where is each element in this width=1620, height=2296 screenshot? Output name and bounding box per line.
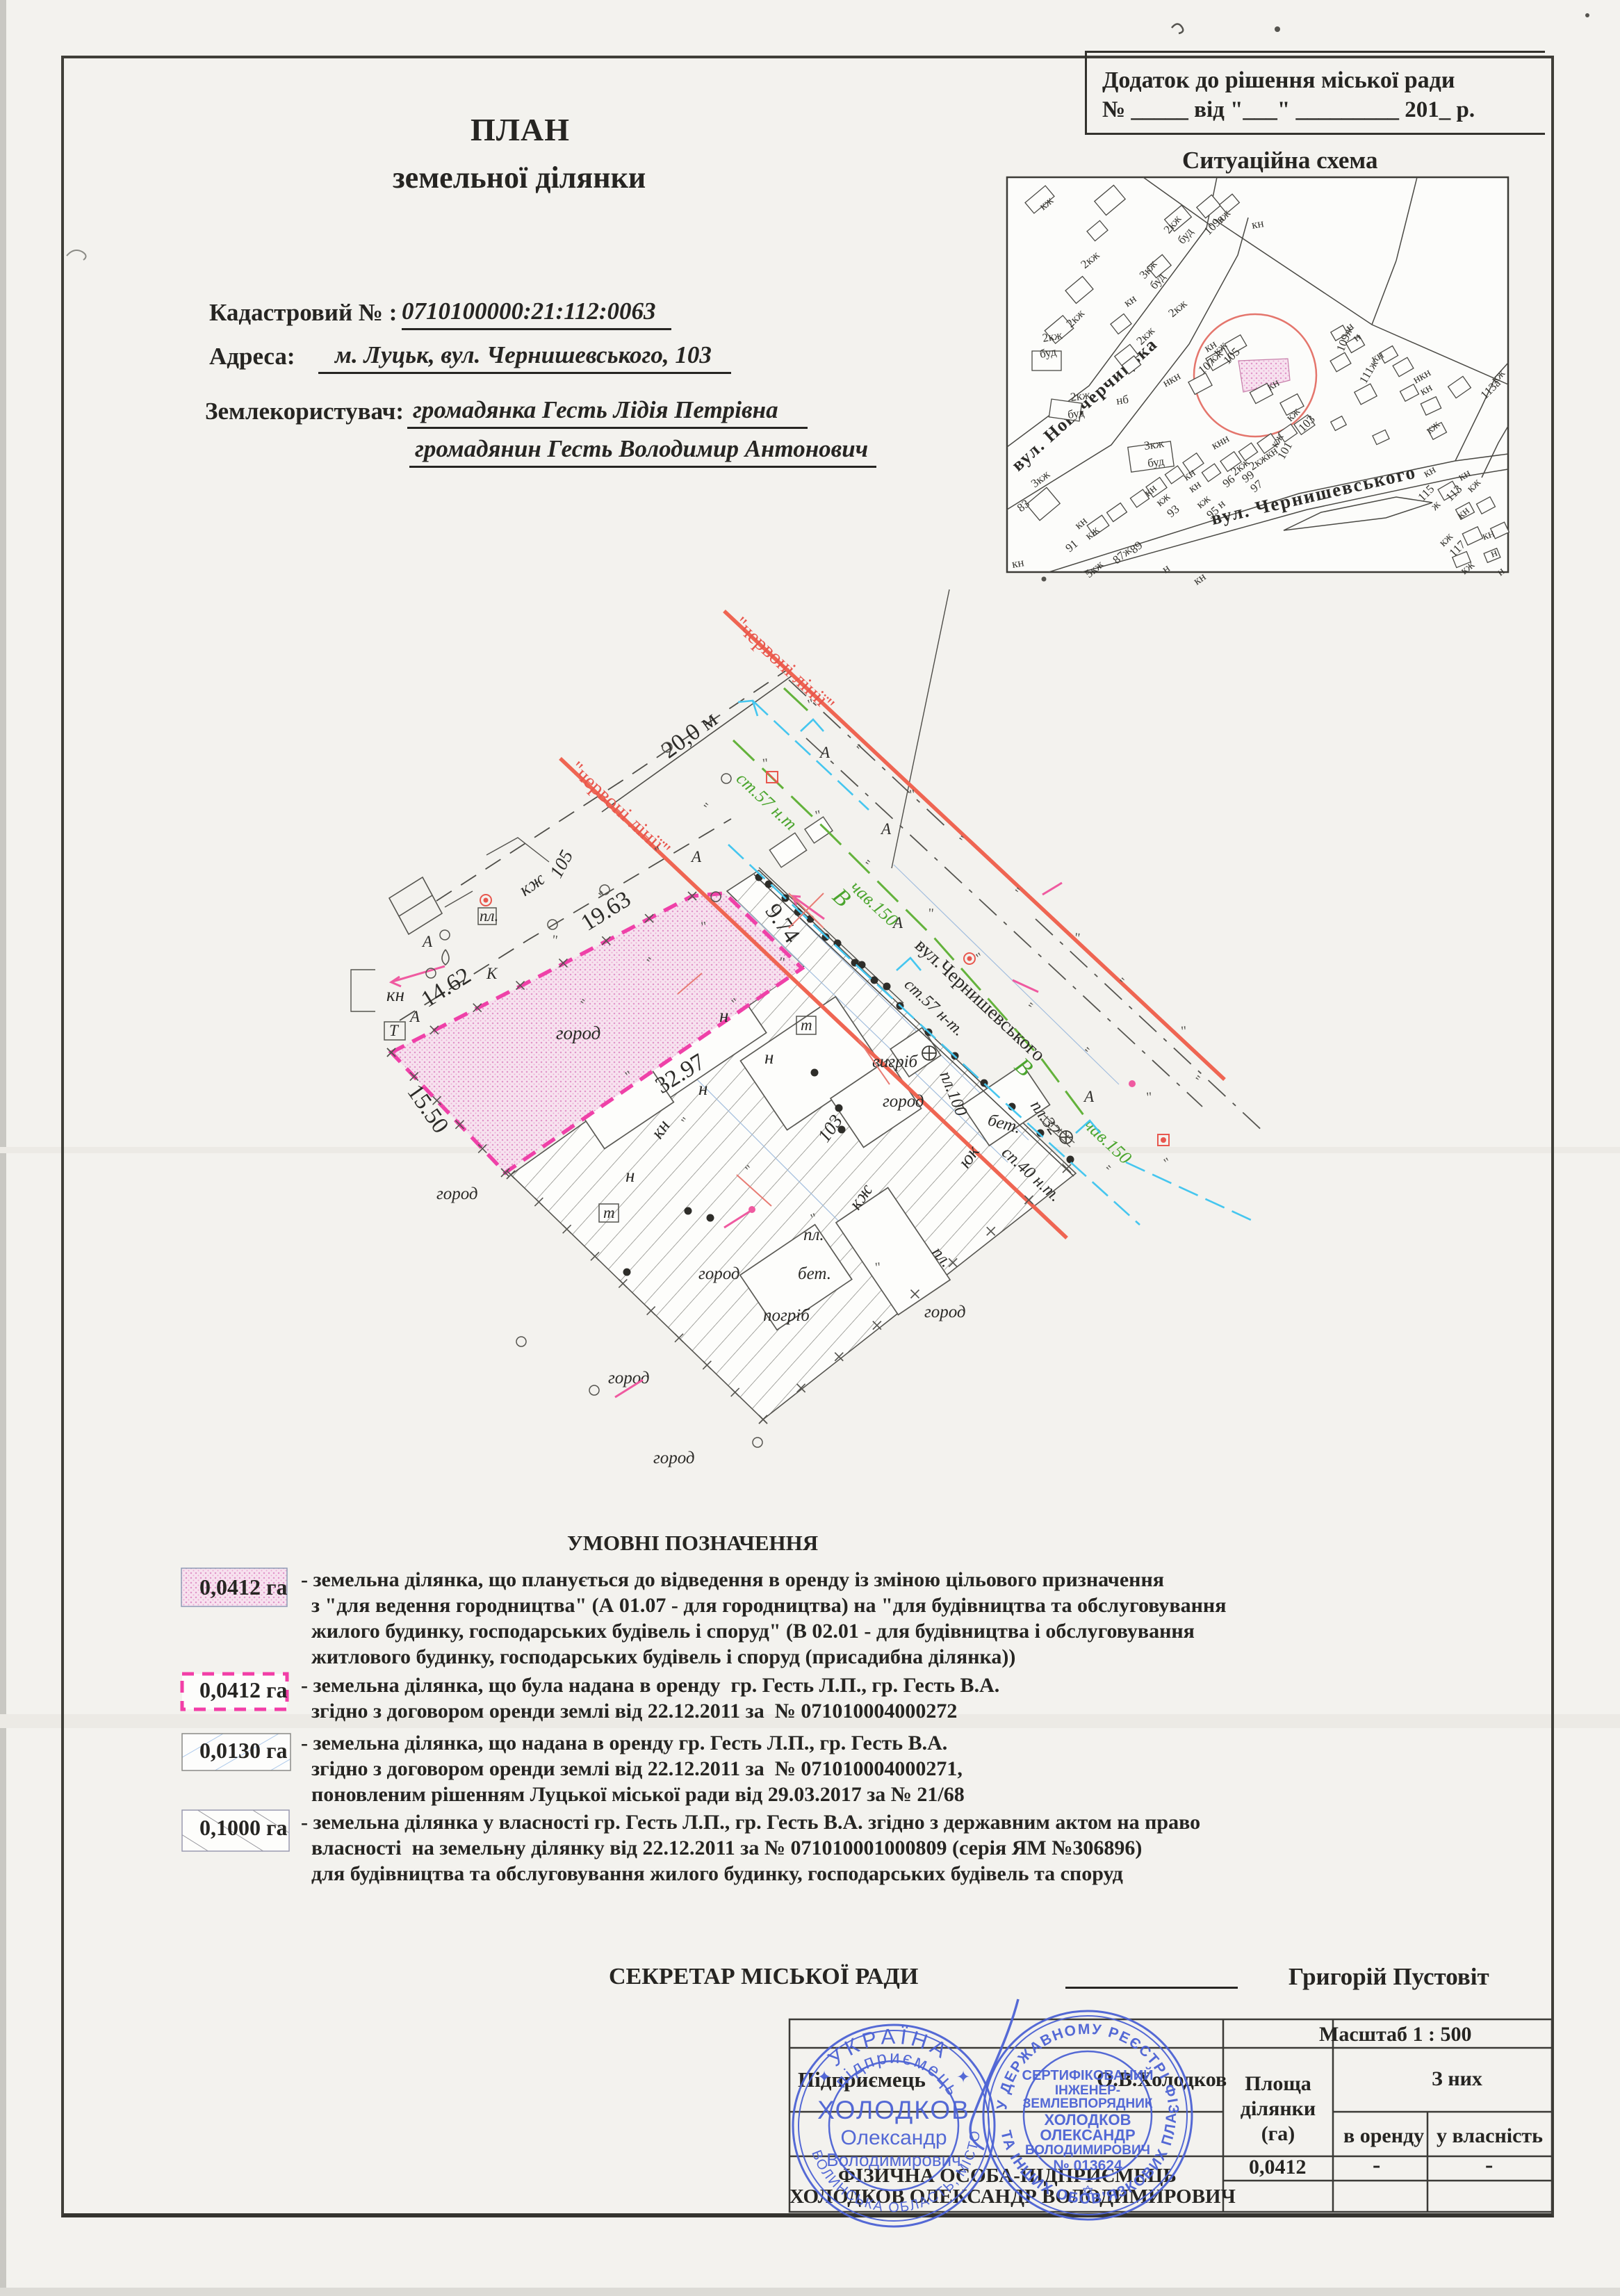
svg-text:ЗЕМЛЕВПОРЯДНИК: ЗЕМЛЕВПОРЯДНИК (1023, 2096, 1153, 2111)
svg-text:ІНЖЕНЕР-: ІНЖЕНЕР- (1055, 2083, 1120, 2098)
svg-text:✡: ✡ (1081, 2183, 1094, 2200)
svg-text:Олександр: Олександр (840, 2126, 947, 2149)
svg-text:ОЛЕКСАНДР: ОЛЕКСАНДР (1040, 2126, 1135, 2144)
svg-text:У ДЕРЖАВНОМУ РЕЄСТРІ ФІЗИЧНИХ: У ДЕРЖАВНОМУ РЕЄСТРІ ФІЗИЧНИХ ОСІБ- (0, 0, 1181, 2115)
svg-text:ВОЛИНСЬКА ОБЛАСТЬ, МІСТО ЛУЦЬК: ВОЛИНСЬКА ОБЛАСТЬ, МІСТО ЛУЦЬК 222401275… (0, 0, 983, 2215)
svg-text:№ 013624: № 013624 (1053, 2158, 1122, 2174)
svg-text:ТА ІНШИХ ОБОВ'ЯЗКОВИХ ПЛАТЕЖІВ: ТА ІНШИХ ОБОВ'ЯЗКОВИХ ПЛАТЕЖІВ 221202161… (0, 0, 1179, 2207)
svg-text:Володимирович: Володимирович (826, 2149, 960, 2170)
svg-text:ВОЛОДИМИРОВИЧ: ВОЛОДИМИРОВИЧ (1025, 2143, 1150, 2158)
svg-text:✦: ✦ (956, 2068, 970, 2087)
svg-text:✦: ✦ (817, 2068, 831, 2087)
svg-text:СЕРТИФІКОВАНИЙ: СЕРТИФІКОВАНИЙ (1022, 2067, 1154, 2083)
svg-text:ХОЛОДКОВ: ХОЛОДКОВ (817, 2096, 970, 2124)
